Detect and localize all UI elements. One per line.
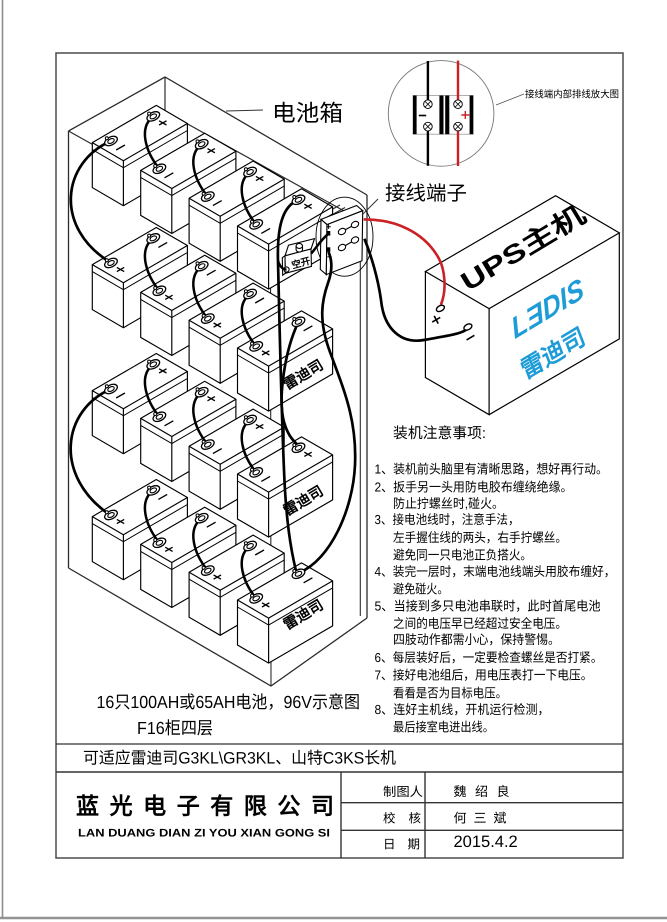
svg-text:8、连好主机线，开机运行检测，: 8、连好主机线，开机运行检测，	[375, 702, 550, 717]
svg-text:1、装机前头脑里有清晰思路，想好再行动。: 1、装机前头脑里有清晰思路，想好再行动。	[375, 461, 609, 476]
svg-text:接线端内部排线放大图: 接线端内部排线放大图	[525, 89, 619, 101]
svg-text:3、接电池线时，注意手法，: 3、接电池线时，注意手法，	[375, 512, 520, 527]
svg-text:7、接好电池组后，用电压表打一下电压。: 7、接好电池组后，用电压表打一下电压。	[375, 668, 593, 683]
svg-text:左手握住线的两头，右手拧螺丝。: 左手握住线的两头，右手拧螺丝。	[393, 530, 567, 545]
svg-text:制图人: 制图人	[383, 785, 424, 799]
svg-text:2015.4.2: 2015.4.2	[454, 833, 518, 851]
svg-text:避免同一只电池正负搭火。: 避免同一只电池正负搭火。	[393, 547, 532, 562]
svg-text:避免碰火。: 避免碰火。	[393, 582, 449, 597]
svg-text:4、装完一层时，末端电池线端头用胶布缠好，: 4、装完一层时，末端电池线端头用胶布缠好，	[375, 564, 616, 579]
svg-text:四肢动作都需小心，保持警惕。: 四肢动作都需小心，保持警惕。	[393, 632, 560, 647]
svg-text:可适应雷迪司G3KL\GR3KL、山特C3KS长机: 可适应雷迪司G3KL\GR3KL、山特C3KS长机	[83, 750, 396, 768]
svg-text:5、当接到多只电池串联时，此时首尾电池: 5、当接到多只电池串联时，此时首尾电池	[375, 598, 601, 613]
svg-text:电池箱: 电池箱	[272, 100, 343, 126]
svg-text:LAN DUANG DIAN ZI YOU XIAN GON: LAN DUANG DIAN ZI YOU XIAN GONG SI	[78, 828, 330, 840]
svg-text:何三斌: 何三斌	[454, 811, 507, 826]
svg-text:魏绍良: 魏绍良	[454, 784, 510, 799]
svg-text:看看是否为目标电压。: 看看是否为目标电压。	[393, 685, 507, 700]
svg-text:接线端子: 接线端子	[385, 183, 467, 205]
svg-text:之间的电压早已经超过安全电压。: 之间的电压早已经超过安全电压。	[393, 616, 567, 631]
svg-text:16只100AH或65AH电池，96V示意图: 16只100AH或65AH电池，96V示意图	[97, 692, 361, 712]
svg-text:防止拧螺丝时,碰火。: 防止拧螺丝时,碰火。	[393, 496, 504, 511]
svg-text:装机注意事项:: 装机注意事项:	[393, 425, 486, 442]
svg-text:F16柜四层: F16柜四层	[137, 718, 213, 738]
svg-text:6、每层装好后，一定要检查螺丝是否打紧。: 6、每层装好后，一定要检查螺丝是否打紧。	[375, 650, 603, 665]
svg-text:2、扳手另一头用防电胶布缠绕绝缘。: 2、扳手另一头用防电胶布缠绕绝缘。	[375, 480, 573, 495]
svg-text:最后接室电进出线。: 最后接室电进出线。	[393, 720, 494, 735]
